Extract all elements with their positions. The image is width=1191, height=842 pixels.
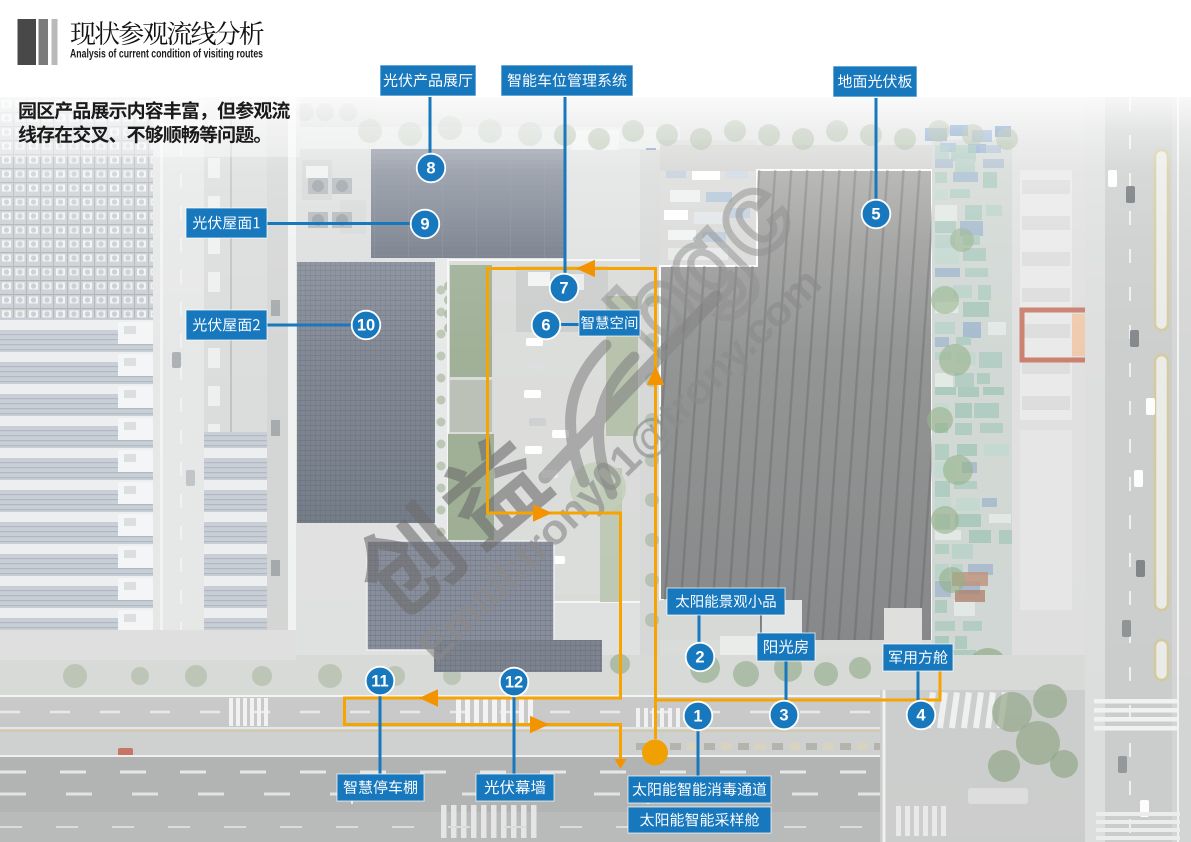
svg-text:Analysis of current condition: Analysis of current condition of visitin… (70, 47, 263, 61)
svg-text:7: 7 (559, 280, 568, 298)
svg-text:3: 3 (779, 707, 788, 725)
svg-text:10: 10 (357, 317, 375, 335)
svg-text:8: 8 (426, 160, 435, 178)
svg-text:12: 12 (505, 674, 523, 692)
svg-text:9: 9 (420, 216, 429, 234)
svg-text:4: 4 (916, 707, 926, 725)
svg-text:1: 1 (693, 708, 702, 726)
svg-text:5: 5 (871, 206, 880, 224)
svg-text:11: 11 (371, 673, 388, 691)
svg-text:6: 6 (541, 317, 550, 335)
svg-text:2: 2 (695, 649, 704, 667)
